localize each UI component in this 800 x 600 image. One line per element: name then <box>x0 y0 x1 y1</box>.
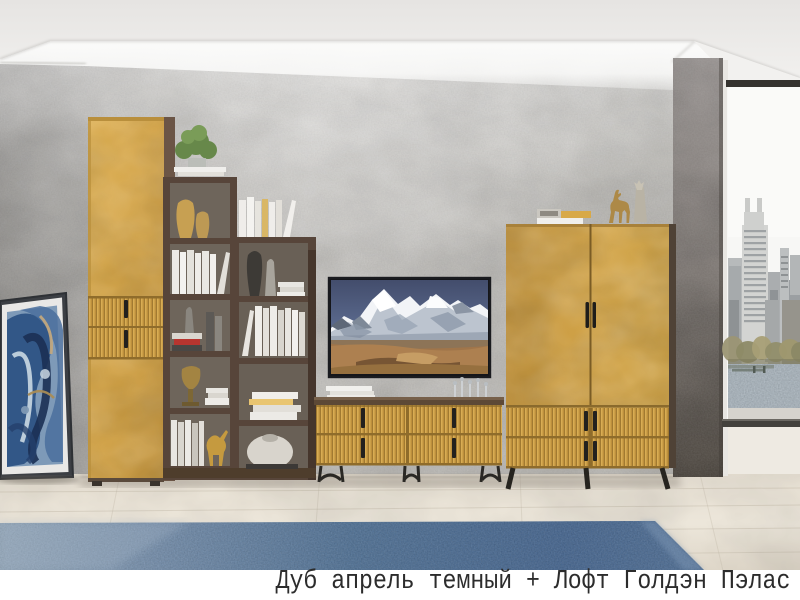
svg-text:Дуб апрель темный + Лофт Голдэ: Дуб апрель темный + Лофт Голдэн Пэлас <box>276 566 791 597</box>
